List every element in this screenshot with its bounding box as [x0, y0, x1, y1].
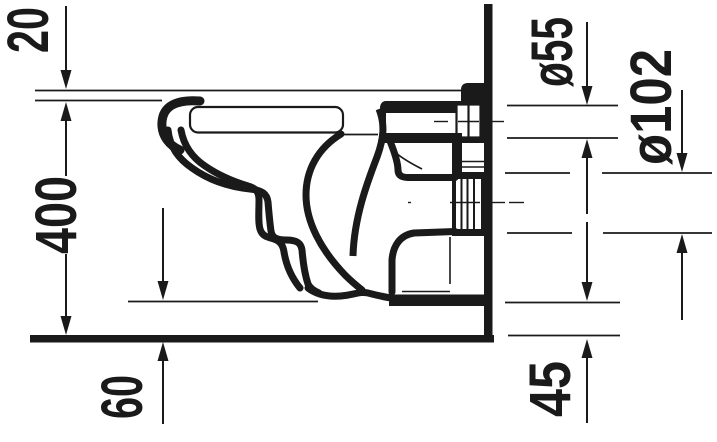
ceramic-between-pipes [452, 133, 462, 174]
ceramic-rear-foot [389, 295, 492, 307]
arrow-down-icon [61, 316, 72, 335]
seat-ring-profile [190, 107, 343, 133]
bowl-front-inner [181, 130, 300, 288]
dim-55-label: ø55 [520, 17, 585, 87]
dimension-rear-clearance-45: 45 [518, 222, 593, 423]
dimension-seat-thickness-20: 20 [0, 6, 72, 89]
dimension-front-clearance-60: 60 [90, 208, 169, 424]
arrow-up-icon [582, 339, 593, 358]
dim-400-label: 400 [24, 176, 89, 254]
arrow-down-icon [61, 70, 72, 89]
toilet-rear-assembly [379, 83, 492, 306]
technical-drawing-canvas: 20 400 60 ø55 ø102 45 [0, 0, 717, 442]
arrow-down-icon [158, 281, 169, 300]
inlet-pipe-bore [386, 113, 458, 133]
arrow-up-icon [677, 234, 688, 253]
arrow-down-icon [582, 86, 593, 105]
arrow-up-icon [158, 342, 169, 361]
outlet-bottom-wall [392, 232, 455, 293]
dimension-outlet-diameter-102: ø102 [619, 49, 688, 320]
toilet-dimension-drawing: 20 400 60 ø55 ø102 45 [0, 0, 717, 442]
dim-45-label: 45 [518, 361, 583, 417]
arrow-up-icon [61, 102, 72, 121]
dimension-rim-height-400: 400 [24, 102, 89, 335]
outlet-top-wall [390, 141, 455, 178]
dim-20-label: 20 [0, 7, 61, 53]
arrow-down-icon [582, 282, 593, 301]
floor-section [30, 335, 494, 343]
dim-102-label: ø102 [619, 49, 684, 165]
arrow-up-icon [582, 139, 593, 158]
dim-60-label: 60 [90, 375, 155, 419]
trap-inner-wall [353, 109, 383, 256]
ceramic-rear-ledge [461, 83, 490, 101]
bowl-underside [308, 288, 400, 299]
floor-line [30, 335, 494, 343]
bowl-interior-back [306, 134, 362, 290]
dimension-inlet-diameter-55: ø55 [520, 17, 593, 214]
